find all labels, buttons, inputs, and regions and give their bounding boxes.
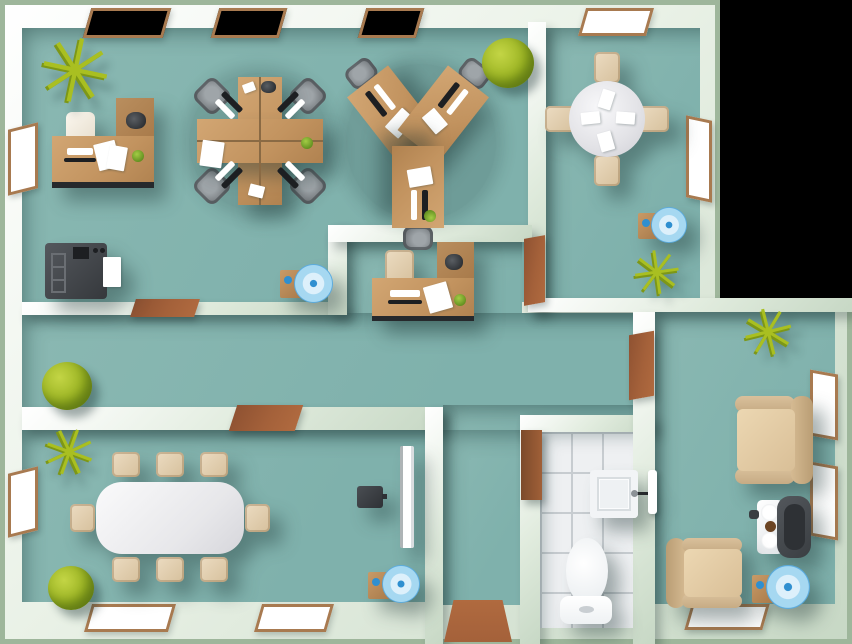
floor-plan: ✳ ✳ [0, 0, 852, 644]
tv-body [357, 486, 383, 508]
door-office-hallway [130, 299, 200, 317]
coffee-spot [765, 521, 776, 532]
keyboard-tray [388, 300, 422, 304]
cooler-bottle [766, 565, 810, 609]
copier-tray-line [51, 266, 66, 268]
coffee-machine [753, 496, 811, 558]
desk-plant-icon [424, 210, 436, 222]
sink-bowl [600, 480, 628, 508]
window [254, 604, 334, 632]
water-cooler [752, 563, 816, 609]
tv-box [357, 486, 387, 510]
coffee-machine-top [784, 504, 805, 550]
printer-copier [45, 243, 125, 303]
cooler-bottle [294, 264, 333, 303]
entrance-doormat [444, 600, 512, 642]
monitor-icon [445, 254, 463, 270]
wall-conference-right [425, 407, 443, 644]
chair [156, 557, 184, 582]
conference-table-set [70, 452, 270, 582]
window [211, 8, 288, 38]
chair [70, 504, 95, 532]
flush-button [579, 606, 594, 613]
window [84, 604, 176, 632]
armchair [666, 538, 746, 608]
copier-tray-line [51, 279, 66, 281]
monitor-icon [261, 81, 276, 93]
coffee-cup [761, 504, 778, 521]
copier-control-panel [73, 247, 89, 259]
chair [245, 504, 270, 532]
tv-mount [382, 494, 387, 499]
paper [616, 111, 636, 124]
copier-button [100, 248, 105, 253]
screen-surface [400, 446, 414, 548]
bathroom-cabinet [521, 430, 542, 500]
chair [594, 155, 620, 186]
window [358, 8, 425, 38]
chair [594, 52, 620, 83]
toilet [560, 538, 614, 632]
door-lounge [629, 331, 654, 400]
desk-plant-icon [301, 137, 313, 149]
copier-tray-panel [51, 253, 66, 293]
three-person-desk-cluster [356, 60, 480, 236]
cooler-bottle [382, 565, 420, 603]
water-cooler [280, 264, 336, 304]
desk-edge [372, 316, 474, 321]
desk-surface [392, 146, 444, 228]
workstation-arm [392, 146, 444, 250]
bush-plant-icon [482, 38, 534, 88]
bathroom-sink [590, 470, 656, 522]
keyboard-icon [67, 148, 93, 155]
chair [112, 452, 140, 477]
desk-plant-icon [132, 150, 144, 162]
copier-button [93, 248, 98, 253]
keyboard-icon [411, 190, 417, 220]
door-meeting-room [524, 235, 545, 306]
faucet-head [631, 490, 638, 497]
wall-screen [400, 446, 415, 548]
chair [200, 557, 228, 582]
seat-cushion [737, 409, 795, 471]
wall-meeting-lounge-top [528, 298, 852, 312]
chair [156, 452, 184, 477]
keyboard-tray [64, 158, 96, 162]
copier-output-paper [103, 257, 121, 287]
seat-cushion [684, 549, 742, 597]
window [8, 122, 38, 195]
keyboard-icon [390, 290, 420, 297]
bush-plant-icon [48, 566, 94, 610]
armchair [735, 396, 813, 484]
chair [112, 557, 140, 582]
desk-plant-icon [454, 294, 466, 306]
water-cooler [368, 563, 424, 605]
machine-handle [749, 510, 759, 519]
potted-palm-icon: ✳ [628, 241, 686, 307]
chair [200, 452, 228, 477]
bush-plant-icon [42, 362, 92, 410]
window [810, 462, 838, 541]
window [686, 115, 712, 203]
meeting-table-set [545, 52, 669, 186]
conference-table [96, 482, 244, 554]
towel [648, 470, 657, 514]
entry-floor [443, 430, 520, 605]
toilet-bowl [566, 538, 608, 604]
window [578, 8, 654, 36]
desk-edge [52, 182, 154, 188]
door-conference [229, 405, 303, 431]
hallway-floor [22, 313, 633, 409]
monitor-icon [126, 112, 146, 129]
coffee-cup [761, 532, 778, 549]
reception-desk [372, 242, 476, 323]
paper [199, 140, 224, 169]
paper [580, 111, 600, 125]
four-person-desk-cluster [195, 75, 325, 207]
window [810, 370, 838, 441]
